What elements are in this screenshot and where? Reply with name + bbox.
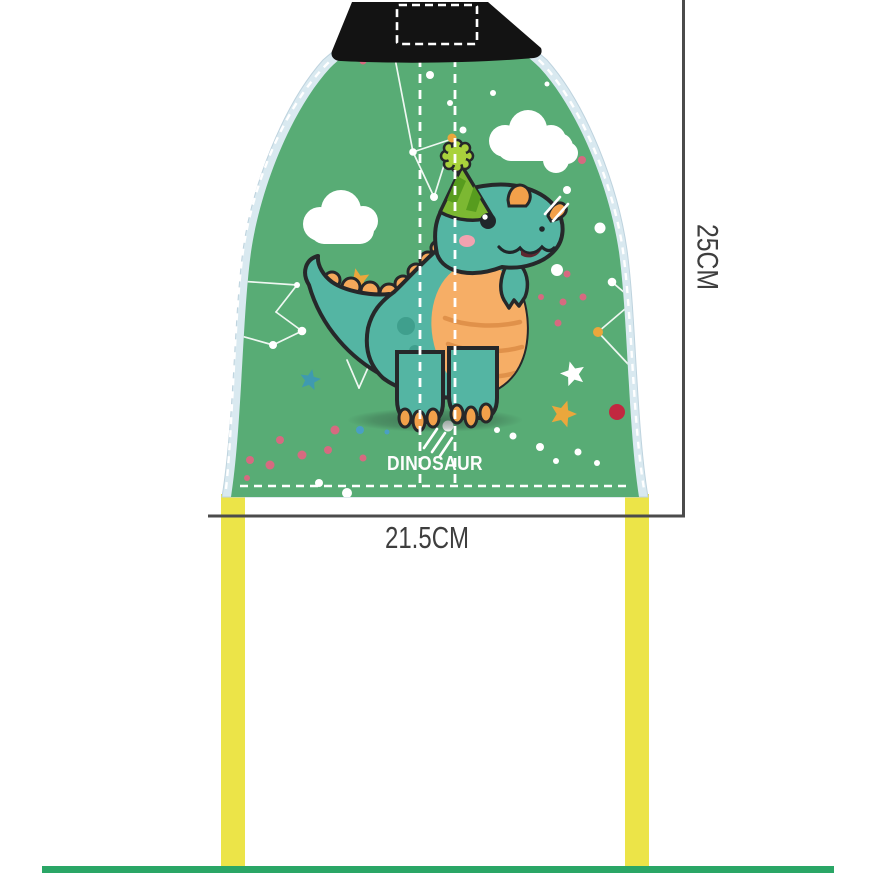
canopy-brand-label: DINOSAUR xyxy=(387,453,483,475)
red-dot xyxy=(609,404,625,420)
product-dimension-diagram: 25CM 21.5CM xyxy=(0,0,874,874)
height-dimension-label: 25CM xyxy=(691,224,724,290)
speed-dot xyxy=(563,186,571,194)
dino-arm xyxy=(501,266,528,308)
elastic-band-left xyxy=(221,494,245,868)
bottom-green-bar xyxy=(42,866,834,873)
elastic-band-right xyxy=(625,494,649,868)
dino-nose-horn xyxy=(508,185,530,206)
hat-pompom xyxy=(441,140,473,172)
width-dimension-label: 21.5CM xyxy=(385,520,469,555)
